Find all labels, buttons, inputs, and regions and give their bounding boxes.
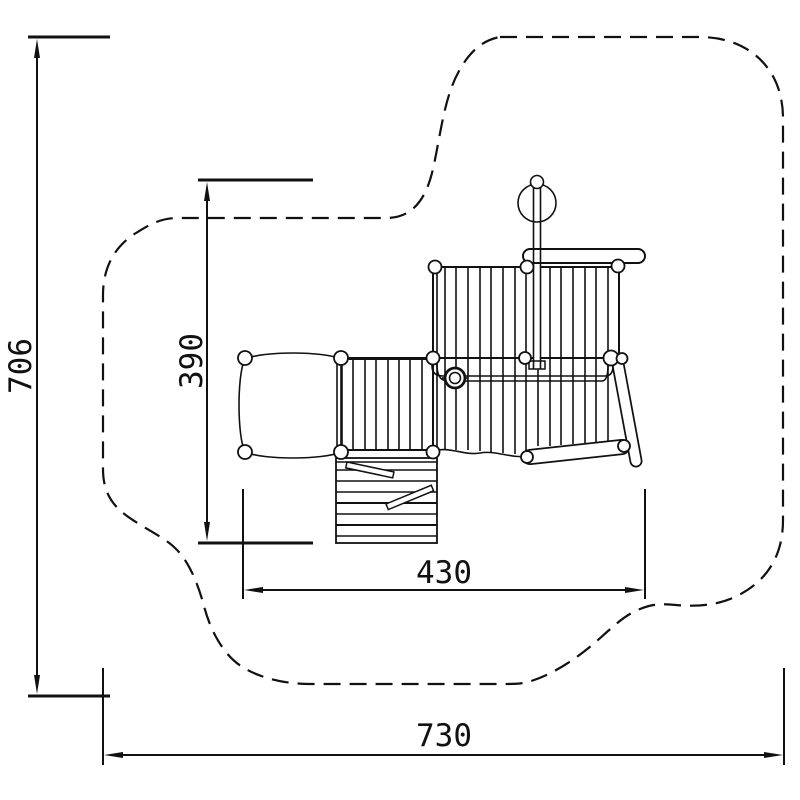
arrowhead-right [625, 587, 644, 593]
beam-end-post [618, 440, 630, 452]
dim-label-730: 730 [416, 718, 472, 754]
upper-deck [342, 267, 619, 457]
firemans-pole [442, 368, 468, 388]
access-ramp [336, 458, 437, 543]
dim-label-390: 390 [174, 333, 210, 389]
arrowhead-left [104, 752, 123, 758]
post-circle [521, 261, 534, 274]
dim-label-706: 706 [3, 338, 39, 394]
post-circle [429, 261, 442, 274]
dimension-overall-height: 706 [3, 37, 110, 696]
drawing-sheet: 706 390 430 730 [0, 0, 800, 800]
beam-end-post [521, 451, 533, 463]
post-circle [238, 445, 252, 459]
post-circle [238, 351, 252, 365]
telescope-post-cap [531, 176, 544, 189]
arrowhead-right [764, 752, 783, 758]
balance-beam [530, 447, 622, 457]
arrowhead-down [204, 522, 210, 541]
dimension-overall-width: 730 [103, 668, 784, 765]
left-platform [239, 353, 341, 458]
post-circle [612, 260, 625, 273]
telescope-post-mask [534, 264, 540, 368]
post-circle [427, 352, 440, 365]
slide-top-post [617, 353, 628, 364]
pole-outer-circle [445, 368, 465, 388]
post-circle [334, 351, 348, 365]
arrowhead-down [34, 675, 40, 694]
plan-drawing: 706 390 430 730 [0, 0, 800, 800]
post-circle [427, 446, 440, 459]
dim-label-430: 430 [416, 555, 472, 591]
arrowhead-left [244, 587, 263, 593]
telescope-circle [518, 184, 556, 222]
telescope-post-base [529, 361, 545, 369]
post-circle [519, 352, 531, 364]
arrowhead-up [34, 39, 40, 58]
lower-deck [342, 359, 433, 451]
arrowhead-up [204, 182, 210, 201]
post-circle [334, 445, 348, 459]
